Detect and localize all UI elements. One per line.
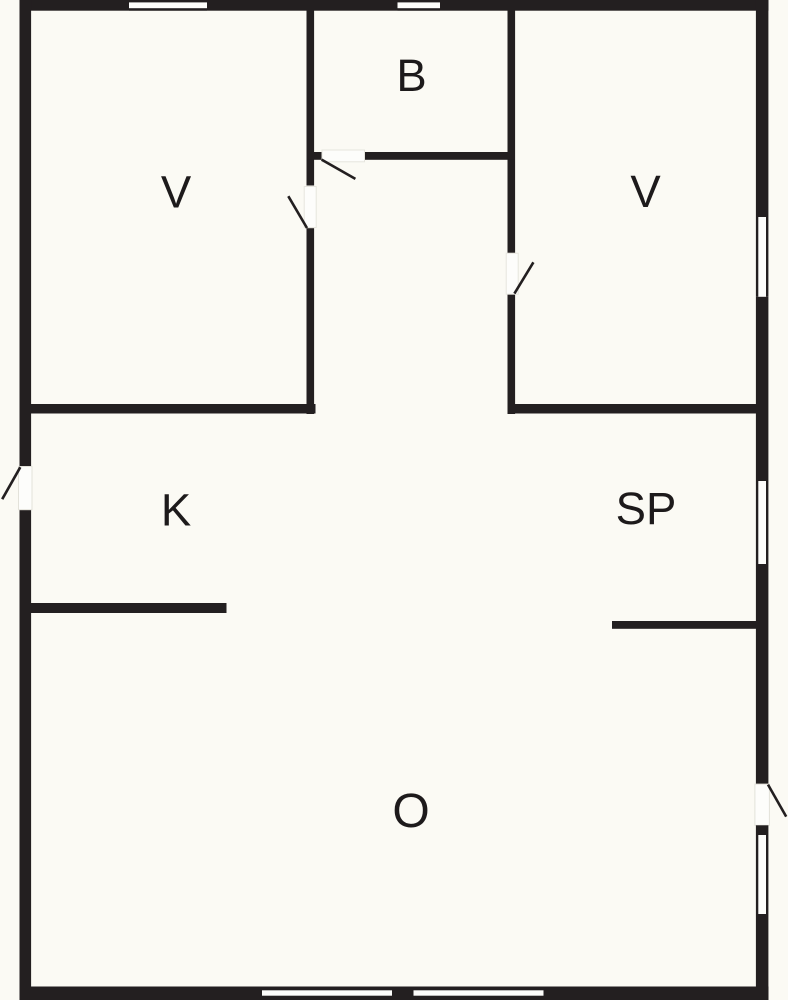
- svg-text:O: O: [392, 785, 429, 838]
- svg-text:V: V: [630, 166, 661, 217]
- svg-text:V: V: [161, 167, 192, 218]
- svg-text:B: B: [396, 50, 426, 101]
- svg-text:SP: SP: [616, 483, 677, 534]
- svg-text:K: K: [161, 484, 191, 535]
